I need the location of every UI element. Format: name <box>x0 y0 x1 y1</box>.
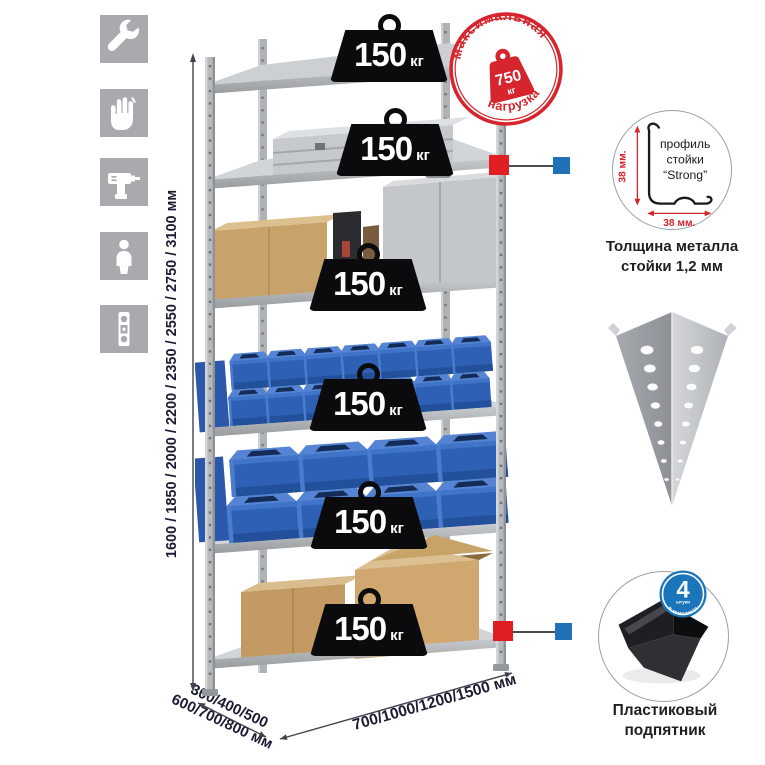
load-value: 150 <box>333 379 385 428</box>
load-badge-3: 150 кг <box>309 243 427 311</box>
post-profile-detail: 38 мм. 38 мм. профиль стойки “Strong” <box>612 110 732 230</box>
profile-caption-line2: стойки 1,2 мм <box>592 257 752 277</box>
load-unit: кг <box>389 402 403 419</box>
callout-marker-blue-top <box>553 157 570 174</box>
profile-dim-horizontal: 38 мм. <box>663 218 695 228</box>
profile-dim-vertical: 38 мм. <box>618 150 629 182</box>
load-value: 150 <box>334 497 386 546</box>
quantity-badge-graphic: 4 штуки в комплекте <box>658 569 708 619</box>
drill-icon <box>100 158 148 206</box>
load-unit: кг <box>390 520 404 537</box>
weight-body: 150 кг <box>309 259 427 311</box>
profile-caption-line1: Толщина металла <box>592 237 752 257</box>
load-badge-2: 150 кг <box>336 108 454 176</box>
load-unit: кг <box>416 147 430 164</box>
foot-caption: Пластиковый подпятник <box>586 701 744 741</box>
person-glyph <box>100 232 148 280</box>
weight-body: 150 кг <box>309 379 427 431</box>
wrench-icon <box>100 15 148 63</box>
base-dimension-lines <box>140 655 560 765</box>
callout-marker-red-top <box>489 155 509 175</box>
profile-label-2: стойки <box>667 153 704 167</box>
quantity-sub: штуки <box>676 600 690 605</box>
callout-marker-red-bottom <box>493 621 513 641</box>
profile-label-3: “Strong” <box>663 168 707 182</box>
drill-glyph <box>100 158 148 206</box>
post-left-face <box>616 312 672 506</box>
load-badge-6: 150 кг <box>310 588 428 656</box>
load-value: 150 <box>354 30 406 79</box>
spirit-level-icon <box>100 305 148 353</box>
foot-caption-line1: Пластиковый <box>586 701 744 721</box>
wrench-glyph <box>100 15 148 63</box>
load-badge-4: 150 кг <box>309 363 427 431</box>
load-unit: кг <box>410 53 424 70</box>
load-badge-1: 150 кг <box>330 14 448 82</box>
load-badge-5: 150 кг <box>310 481 428 549</box>
load-unit: кг <box>389 282 403 299</box>
load-value: 150 <box>333 259 385 308</box>
person-icon <box>100 232 148 280</box>
height-options-label: 1600 / 1850 / 2000 / 2200 / 2350 / 2550 … <box>164 54 180 694</box>
profile-label-1: профиль <box>660 137 710 151</box>
quantity-badge: 4 штуки в комплекте <box>658 569 708 619</box>
load-value: 150 <box>334 604 386 653</box>
load-value: 150 <box>360 124 412 173</box>
callout-line-bottom <box>512 631 556 633</box>
work-gloves-icon <box>100 89 148 137</box>
weight-body: 150 кг <box>336 124 454 176</box>
weight-body: 150 кг <box>330 30 448 82</box>
infographic-shelving-rack: 1600 / 1850 / 2000 / 2200 / 2350 / 2550 … <box>0 0 765 765</box>
weight-body: 150 кг <box>310 604 428 656</box>
foot-caption-line2: подпятник <box>586 721 744 741</box>
profile-caption: Толщина металла стойки 1,2 мм <box>592 237 752 276</box>
callout-marker-blue-bottom <box>555 623 572 640</box>
angle-post-image <box>600 300 745 515</box>
gloves-glyph <box>100 89 148 137</box>
callout-line-top <box>508 165 554 167</box>
weight-body: 150 кг <box>310 497 428 549</box>
profile-drawing: 38 мм. 38 мм. профиль стойки “Strong” <box>613 111 730 228</box>
load-unit: кг <box>390 627 404 644</box>
level-glyph <box>100 305 148 353</box>
post-right-face <box>672 312 728 506</box>
